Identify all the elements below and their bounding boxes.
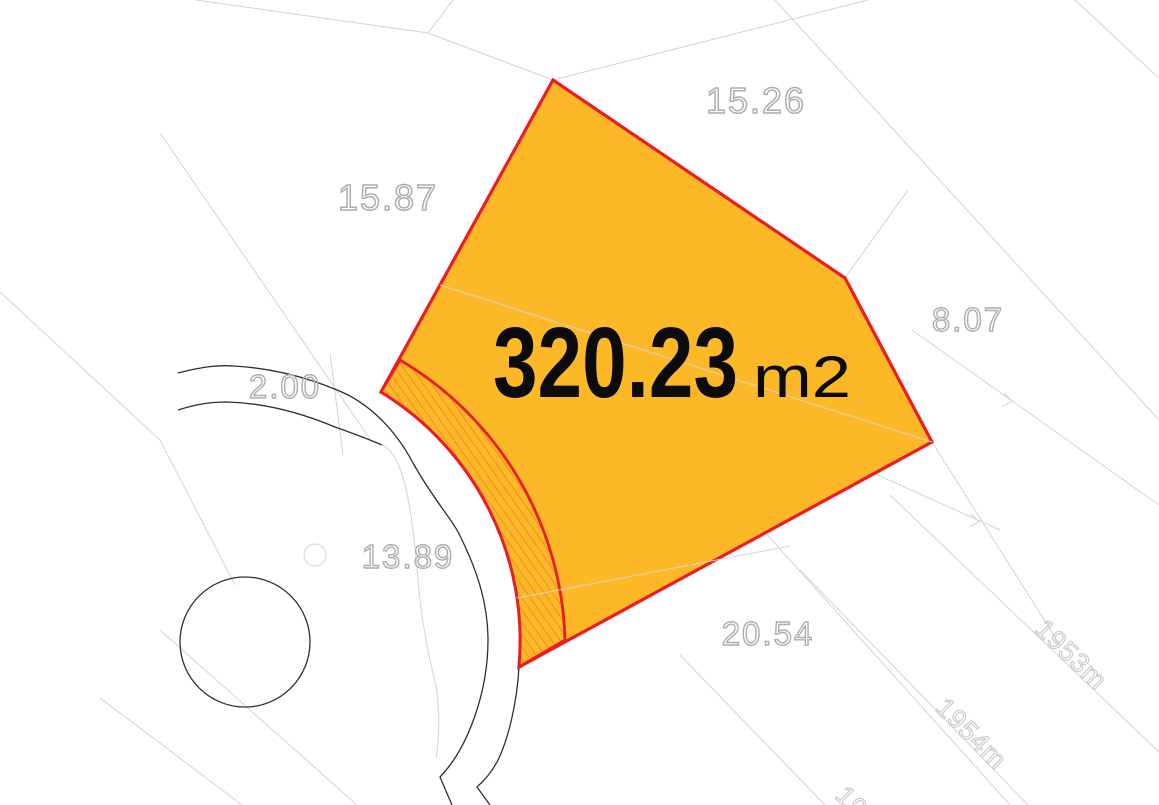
boundary-line: [680, 655, 825, 805]
contour-label-partial: 195: [830, 780, 885, 805]
boundary-line: [860, 467, 1000, 530]
boundary-line: [912, 330, 1159, 505]
contour-labels: 1953m 1954m 195: [830, 613, 1113, 805]
boundary-line: [0, 292, 235, 585]
boundary-line: [196, 0, 553, 80]
boundary-line: [845, 190, 908, 278]
cadastral-map: 320.23 m2 15.26 15.87 8.07 2.00 13.89 20…: [0, 0, 1159, 805]
dimension-label-bottom: 20.54: [722, 615, 815, 652]
area-unit: m2: [753, 345, 851, 410]
roundabout-island-circle: [180, 577, 310, 707]
boundary-line: [100, 698, 242, 805]
boundary-line: [745, 510, 1010, 805]
boundary-line: [553, 0, 868, 80]
dimension-label-arc: 13.89: [362, 538, 455, 575]
boundary-line: [932, 442, 1060, 645]
contour-label-1953: 1953m: [1029, 613, 1113, 695]
dimension-label-left: 15.87: [338, 177, 438, 218]
survey-point-circle: [304, 544, 326, 566]
area-value: 320.23: [493, 307, 738, 419]
map-canvas: 320.23 m2 15.26 15.87 8.07 2.00 13.89 20…: [0, 0, 1159, 805]
dimension-label-right: 8.07: [932, 301, 1004, 338]
road-inner-arc: [178, 402, 382, 445]
dimension-label-road: 2.00: [249, 368, 321, 405]
survey-tick-icon: [969, 514, 979, 527]
boundary-line: [160, 630, 357, 805]
boundary-line: [428, 0, 453, 33]
boundary-line: [1075, 0, 1159, 78]
dimension-label-top: 15.26: [706, 80, 806, 121]
boundary-line: [330, 353, 343, 455]
